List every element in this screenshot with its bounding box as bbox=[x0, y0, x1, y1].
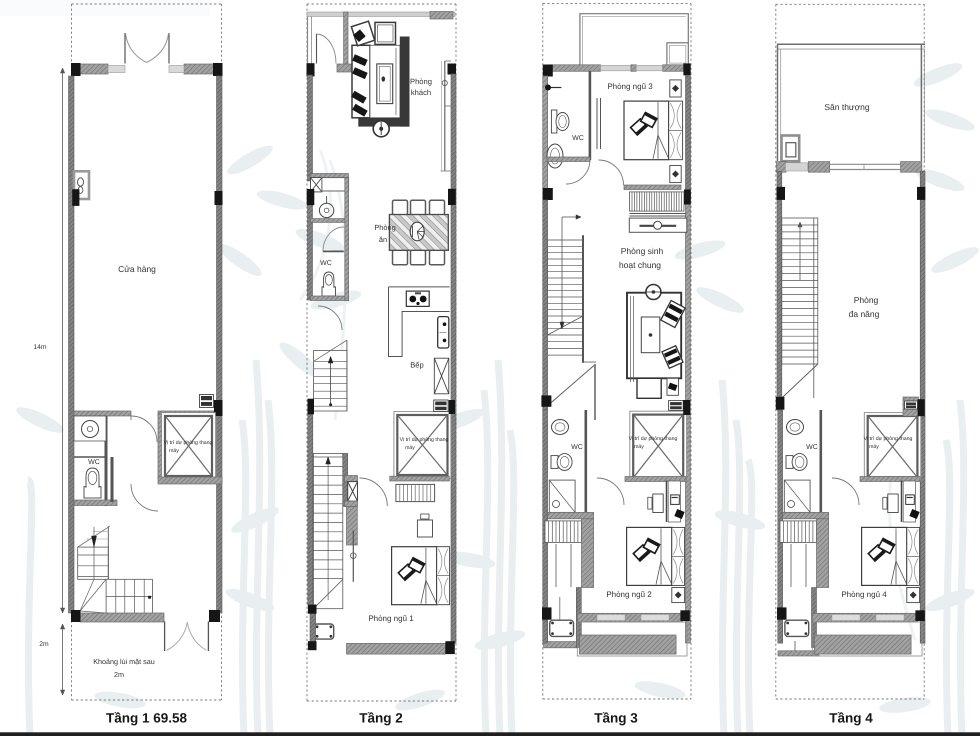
svg-text:Phòng ngũ 2: Phòng ngũ 2 bbox=[606, 590, 652, 599]
svg-text:Phòng ngũ 1: Phòng ngũ 1 bbox=[368, 614, 414, 623]
svg-text:ăn: ăn bbox=[379, 235, 387, 244]
svg-text:Tầng 3: Tầng 3 bbox=[594, 711, 638, 726]
svg-text:Tầng 2: Tầng 2 bbox=[359, 711, 403, 726]
svg-text:WC: WC bbox=[572, 135, 584, 142]
svg-text:Tầng 1 69.58: Tầng 1 69.58 bbox=[106, 711, 188, 726]
svg-text:Phòng ngũ 3: Phòng ngũ 3 bbox=[607, 82, 653, 91]
svg-text:WC: WC bbox=[571, 444, 583, 451]
svg-text:Cửa hàng: Cửa hàng bbox=[118, 264, 156, 274]
svg-text:máy: máy bbox=[869, 444, 879, 450]
svg-text:đa năng: đa năng bbox=[849, 309, 880, 319]
svg-text:Phòng sinh: Phòng sinh bbox=[621, 246, 664, 256]
svg-text:2m: 2m bbox=[39, 641, 49, 648]
svg-text:14m: 14m bbox=[33, 344, 47, 351]
svg-text:Sân thượng: Sân thượng bbox=[824, 102, 870, 112]
svg-text:Phòng: Phòng bbox=[854, 295, 879, 305]
svg-text:máy: máy bbox=[634, 444, 644, 450]
svg-text:Phòng: Phòng bbox=[374, 223, 395, 232]
svg-text:khách: khách bbox=[411, 88, 431, 97]
svg-text:WC: WC bbox=[88, 459, 100, 466]
svg-text:Bếp: Bếp bbox=[410, 361, 424, 370]
svg-text:Vị trí dự phòng thang: Vị trí dự phòng thang bbox=[400, 437, 449, 443]
svg-text:WC: WC bbox=[320, 260, 332, 267]
svg-text:hoạt chung: hoạt chung bbox=[619, 260, 661, 270]
svg-text:Phòng: Phòng bbox=[410, 77, 432, 86]
svg-text:Vị trí dự phòng thang: Vị trí dự phòng thang bbox=[164, 440, 213, 446]
svg-text:Vị trí dự phòng thang: Vị trí dự phòng thang bbox=[629, 436, 678, 442]
svg-text:máy: máy bbox=[405, 445, 415, 451]
svg-text:Phòng ngủ 4: Phòng ngủ 4 bbox=[841, 590, 887, 599]
svg-text:2m: 2m bbox=[114, 670, 124, 679]
svg-text:Khoảng lùi mặt sau: Khoảng lùi mặt sau bbox=[93, 657, 155, 666]
svg-text:Vị trí dự phòng thang: Vị trí dự phòng thang bbox=[864, 436, 913, 442]
svg-text:Tầng 4: Tầng 4 bbox=[829, 711, 873, 726]
svg-text:máy: máy bbox=[169, 448, 179, 454]
svg-text:WC: WC bbox=[806, 444, 818, 451]
